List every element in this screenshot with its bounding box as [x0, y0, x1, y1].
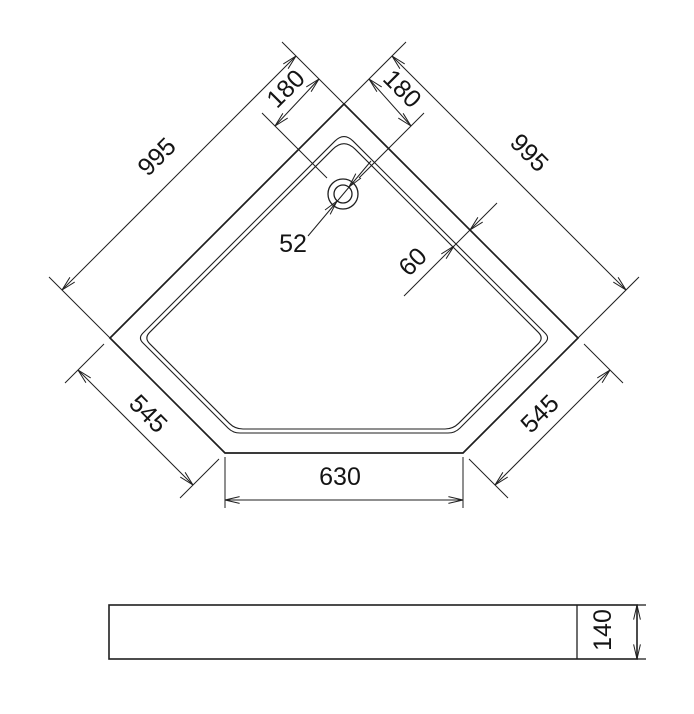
dim-line-995-left	[62, 56, 296, 290]
dim-label-995-right: 995	[504, 128, 553, 177]
dim-label-630: 630	[319, 463, 361, 491]
dim-label-60: 60	[393, 242, 432, 281]
dim-label-545-right: 545	[515, 389, 564, 438]
ext-line-995-right-vertex	[578, 277, 639, 338]
leader-line-52	[308, 161, 371, 236]
dim-label-995-left: 995	[132, 132, 181, 181]
ext-line-drain-left	[262, 113, 327, 178]
side-view-body	[109, 605, 637, 659]
dim-label-140: 140	[589, 609, 617, 651]
drawing-canvas: 9959951801805455456305260140	[0, 0, 694, 714]
tray-outline-outer	[110, 104, 578, 453]
dim-label-180-left: 180	[261, 64, 310, 113]
tray-rim-outer-line	[140, 137, 547, 433]
dim-label-52: 52	[279, 230, 307, 258]
ext-line-995-left-vertex	[49, 277, 110, 338]
dim-line-995-right	[392, 56, 626, 290]
dim-label-545-left: 545	[123, 389, 172, 438]
dim-line-545-left	[78, 370, 193, 485]
shower-tray-technical-drawing: 9959951801805455456305260140	[0, 0, 694, 714]
ext-line-drain-right	[359, 113, 424, 178]
dim-label-180-right: 180	[377, 64, 426, 113]
dim-line-545-right	[495, 370, 610, 485]
tray-rim-inner-line	[147, 144, 541, 429]
